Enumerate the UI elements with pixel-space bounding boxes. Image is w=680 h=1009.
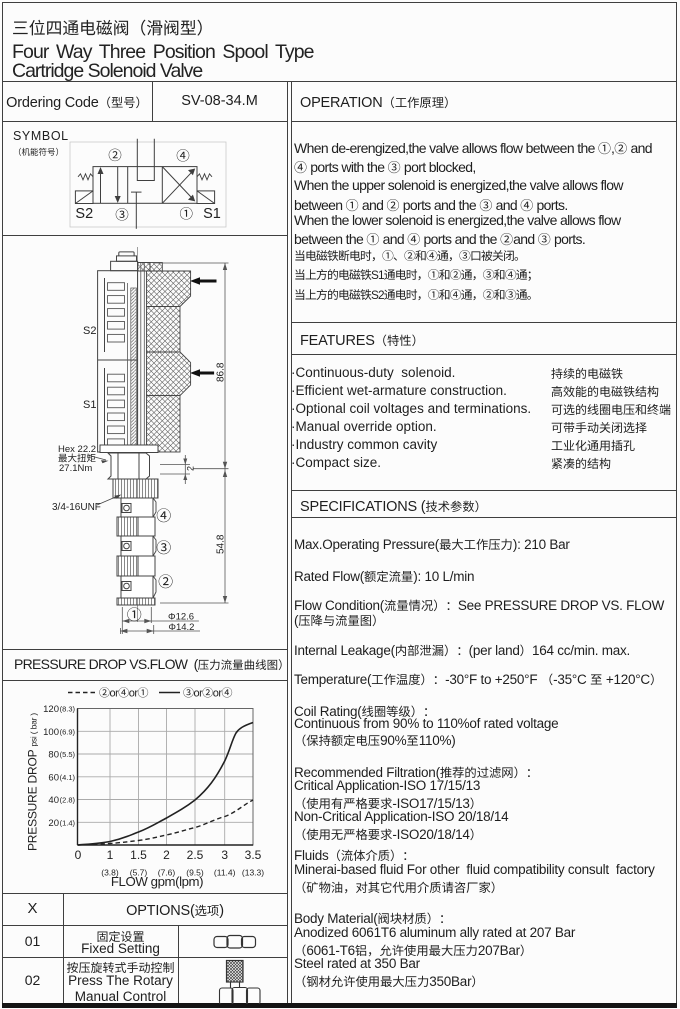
svg-text:③: ③	[115, 208, 129, 223]
svg-text:2: 2	[186, 466, 196, 471]
svg-text:(11.4): (11.4)	[214, 868, 236, 878]
svg-text:2.5: 2.5	[187, 848, 204, 862]
svg-text:(6.9): (6.9)	[60, 727, 76, 736]
svg-text:0: 0	[75, 848, 82, 862]
svg-text:86.8: 86.8	[216, 362, 227, 382]
svg-text:Φ14.2: Φ14.2	[168, 622, 194, 633]
svg-text:②: ②	[108, 148, 122, 163]
svg-text:(4.1): (4.1)	[60, 773, 76, 782]
svg-text:60: 60	[48, 772, 59, 783]
svg-text:①: ①	[180, 207, 194, 222]
svg-text:S1: S1	[203, 206, 221, 222]
svg-text:80: 80	[48, 750, 59, 761]
svg-text:③: ③	[156, 540, 171, 557]
svg-text:3: 3	[221, 848, 228, 862]
svg-text:S1: S1	[83, 399, 96, 411]
svg-text:①: ①	[127, 607, 142, 624]
svg-text:FLOW gpm(lpm): FLOW gpm(lpm)	[111, 874, 203, 889]
svg-text:3/4-16UNF: 3/4-16UNF	[52, 502, 101, 513]
svg-text:(5.5): (5.5)	[60, 750, 76, 759]
svg-text:120: 120	[43, 704, 59, 715]
svg-text:(2.8): (2.8)	[60, 796, 76, 805]
svg-text:1: 1	[107, 848, 114, 862]
svg-text:(1.4): (1.4)	[60, 818, 76, 827]
svg-text:3.5: 3.5	[245, 848, 262, 862]
svg-text:100: 100	[43, 727, 59, 738]
svg-text:②: ②	[158, 574, 173, 591]
svg-text:④: ④	[176, 149, 190, 164]
svg-text:④: ④	[156, 508, 171, 525]
svg-text:2: 2	[163, 848, 170, 862]
svg-text:S2: S2	[75, 206, 93, 222]
svg-text:S2: S2	[83, 325, 96, 337]
svg-text:PRESSURE DROP psi ( bar ): PRESSURE DROP psi ( bar )	[26, 713, 40, 851]
svg-text:54.8: 54.8	[216, 534, 227, 554]
svg-text:1.5: 1.5	[130, 848, 147, 862]
svg-text:20: 20	[48, 818, 59, 829]
svg-text:③or②or④: ③or②or④	[183, 687, 233, 700]
svg-text:(8.3): (8.3)	[60, 705, 76, 714]
svg-text:(13.3): (13.3)	[242, 868, 264, 878]
svg-text:40: 40	[48, 795, 59, 806]
svg-text:27.1Nm: 27.1Nm	[59, 463, 92, 474]
svg-text:②or④or①: ②or④or①	[99, 687, 149, 700]
